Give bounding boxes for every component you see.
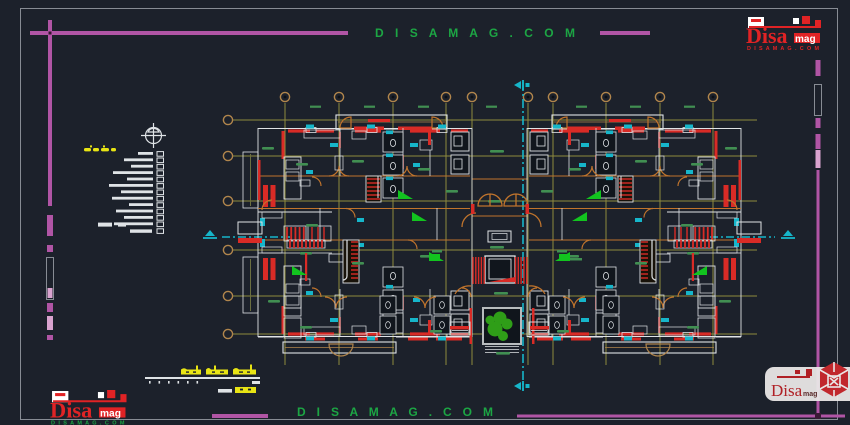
svg-text:mag: mag — [803, 391, 817, 398]
svg-text:D I S A M A G . C O M: D I S A M A G . C O M — [51, 421, 125, 425]
svg-text:mag: mag — [100, 409, 121, 420]
svg-text:D I S A M A G . C O M: D I S A M A G . C O M — [747, 46, 820, 52]
svg-text:D I S A M A G . C O M: D I S A M A G . C O M — [375, 26, 575, 40]
svg-text:Disa: Disa — [50, 398, 92, 423]
svg-text:Disa: Disa — [746, 23, 788, 48]
svg-text:Disa: Disa — [771, 381, 803, 400]
svg-text:D I S A M A G . C O M: D I S A M A G . C O M — [297, 405, 493, 419]
svg-text:mag: mag — [795, 34, 816, 45]
